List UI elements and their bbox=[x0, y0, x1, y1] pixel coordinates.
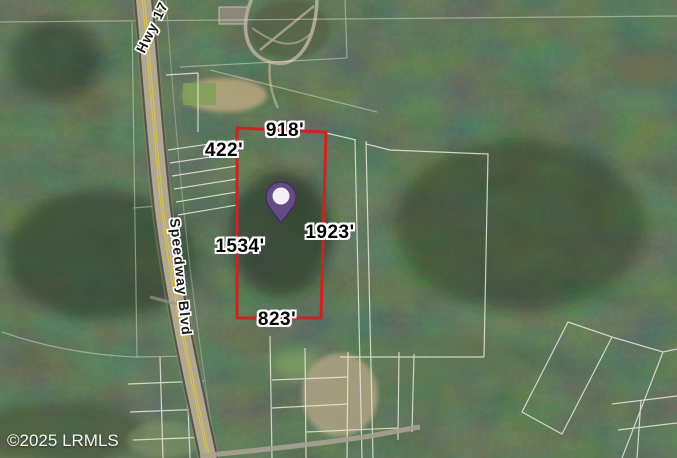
building-footprint bbox=[219, 7, 247, 24]
satellite-map-view[interactable]: Hwy 17 Speedway Blvd 918' 422' 1534' 192… bbox=[0, 0, 677, 458]
green-field bbox=[183, 83, 216, 105]
satellite-imagery bbox=[0, 0, 677, 458]
pin-inner-circle bbox=[273, 188, 290, 205]
